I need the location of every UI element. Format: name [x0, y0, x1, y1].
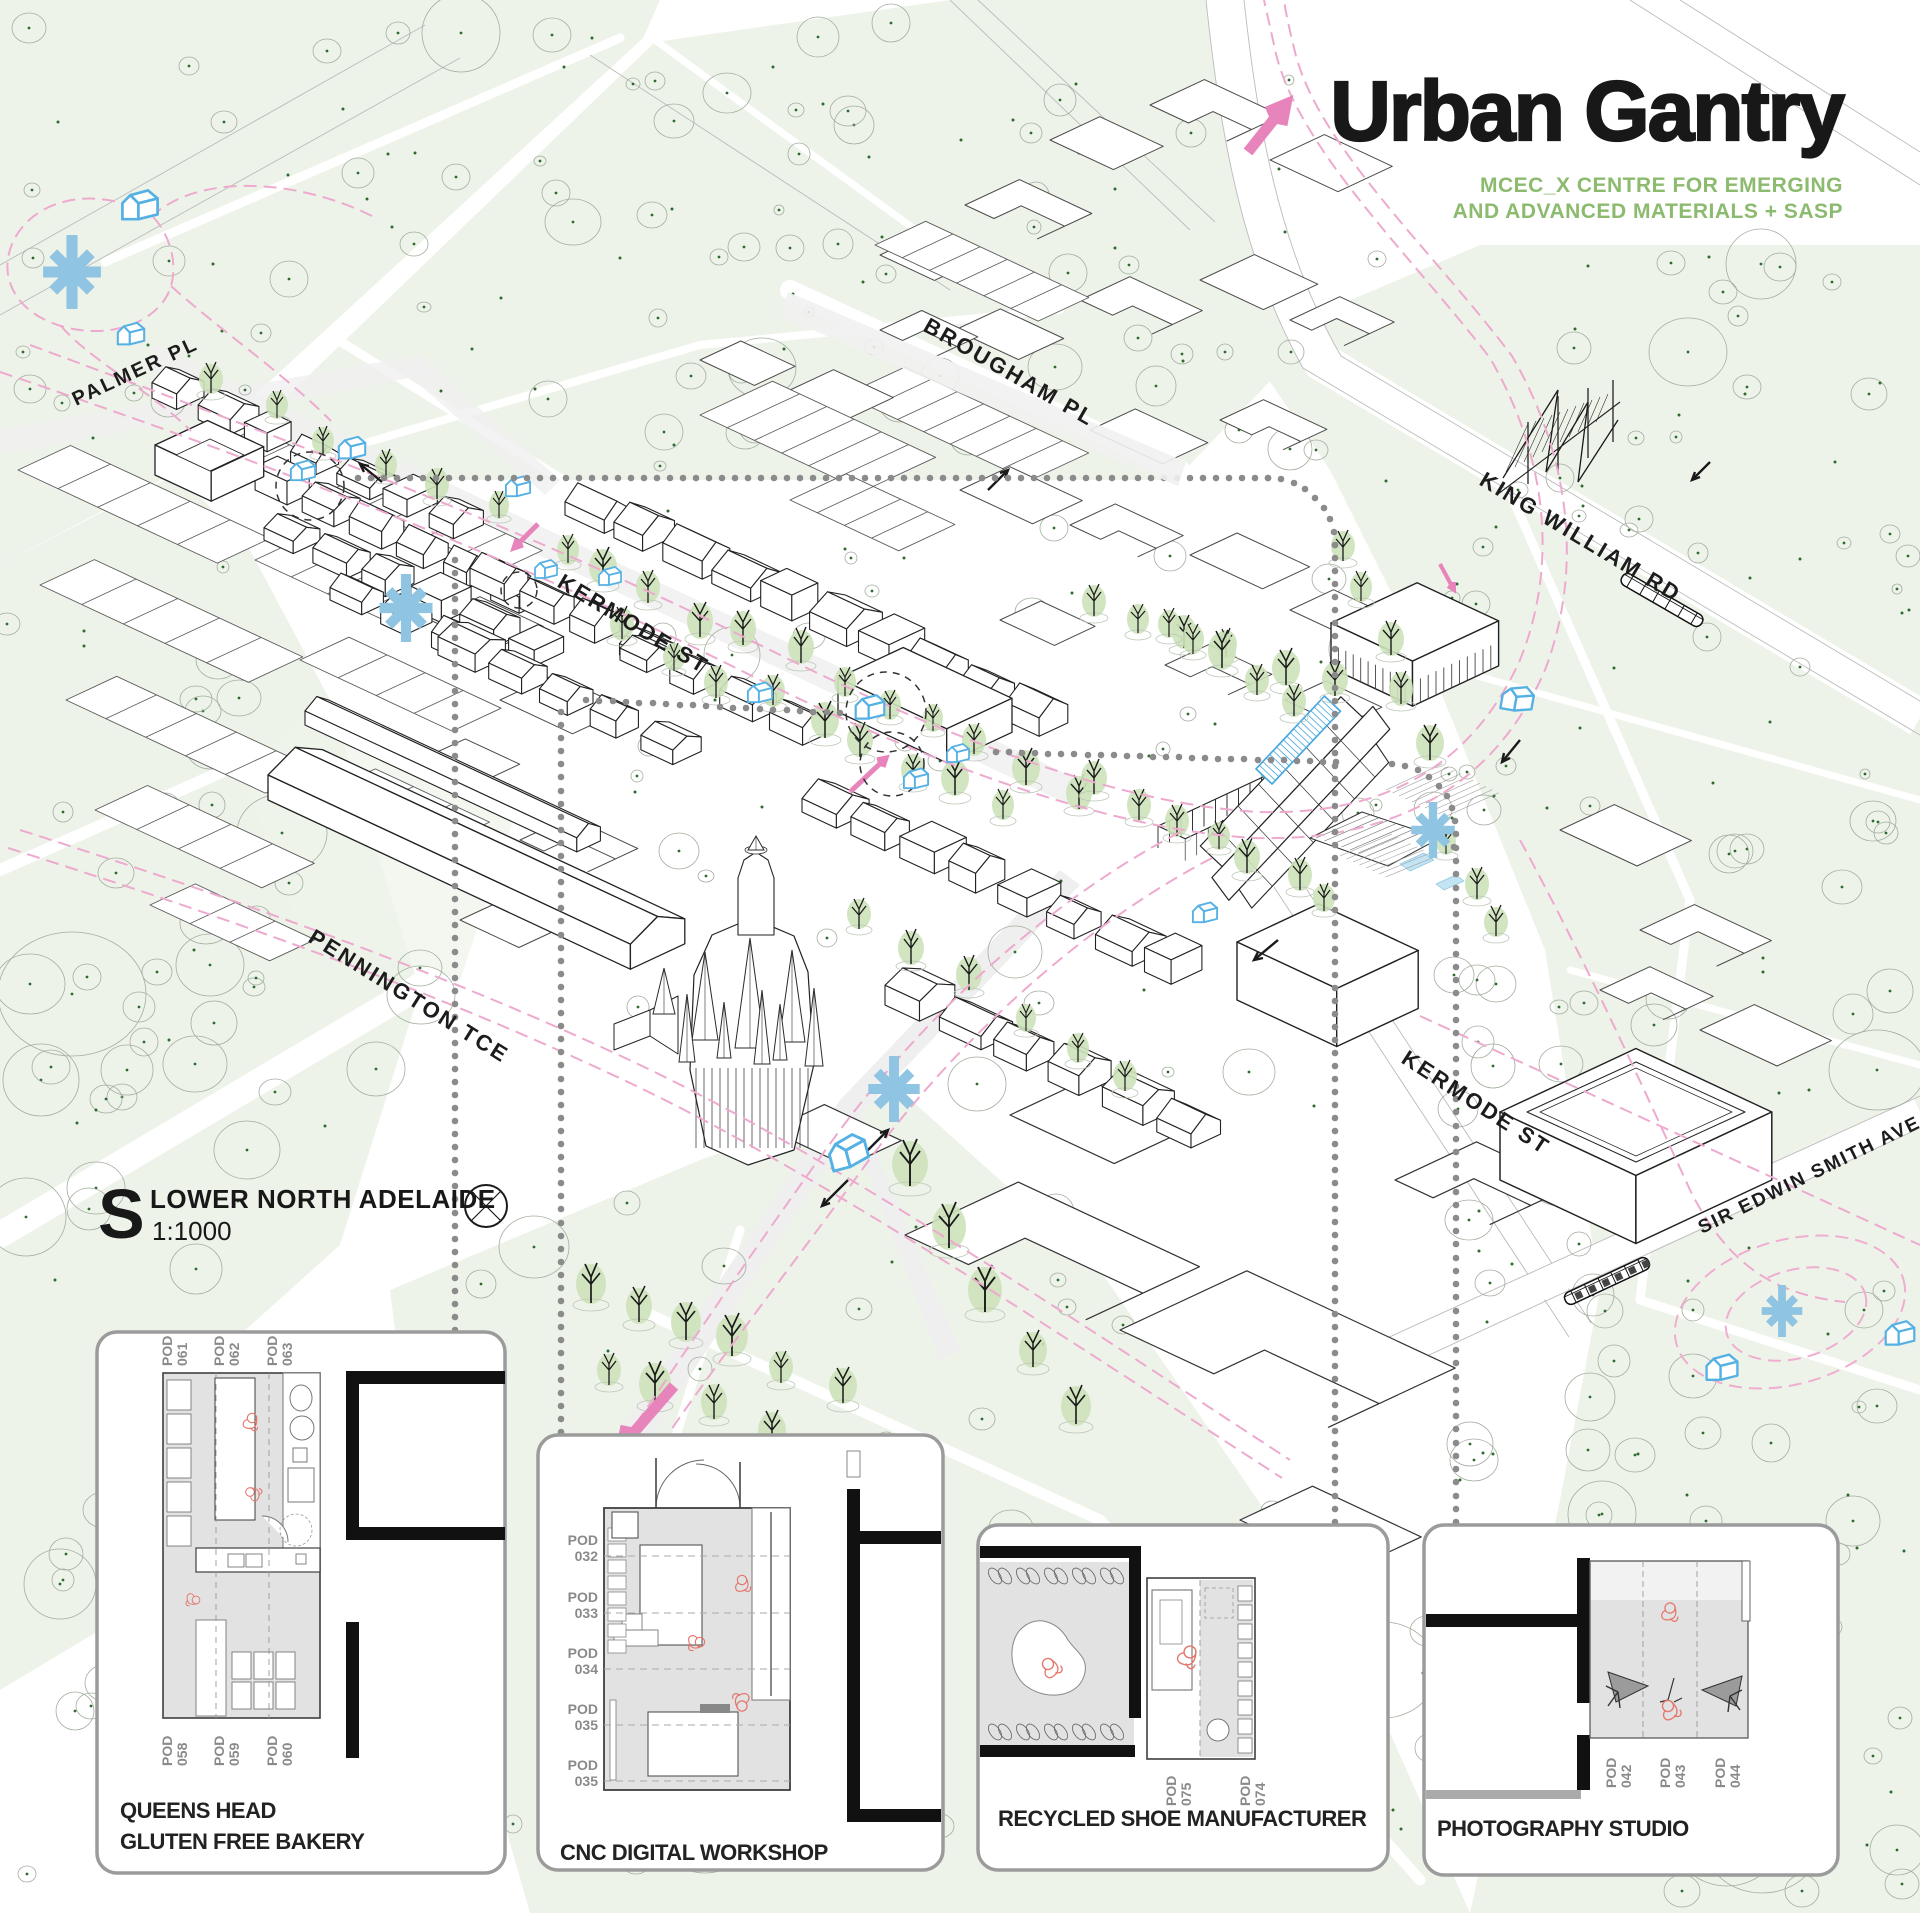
svg-text:1:1000: 1:1000: [152, 1216, 232, 1246]
svg-text:061: 061: [174, 1342, 190, 1366]
svg-text:POD: POD: [568, 1701, 598, 1717]
svg-text:063: 063: [279, 1342, 295, 1366]
svg-text:S: S: [98, 1175, 145, 1253]
svg-text:033: 033: [575, 1605, 599, 1621]
svg-text:POD: POD: [568, 1757, 598, 1773]
svg-text:POD: POD: [211, 1736, 227, 1766]
svg-text:074: 074: [1252, 1782, 1268, 1806]
svg-text:CNC DIGITAL WORKSHOP: CNC DIGITAL WORKSHOP: [560, 1840, 828, 1865]
svg-text:GLUTEN FREE BAKERY: GLUTEN FREE BAKERY: [120, 1829, 365, 1854]
svg-text:AND ADVANCED MATERIALS + SASP: AND ADVANCED MATERIALS + SASP: [1453, 200, 1843, 223]
svg-text:Urban Gantry: Urban Gantry: [1330, 64, 1845, 158]
svg-text:043: 043: [1672, 1764, 1688, 1788]
svg-text:034: 034: [575, 1661, 599, 1677]
svg-text:PHOTOGRAPHY STUDIO: PHOTOGRAPHY STUDIO: [1437, 1816, 1689, 1841]
svg-text:POD: POD: [159, 1736, 175, 1766]
svg-text:POD: POD: [1163, 1776, 1179, 1806]
svg-text:060: 060: [279, 1742, 295, 1766]
svg-text:RECYCLED SHOE MANUFACTURER: RECYCLED SHOE MANUFACTURER: [998, 1806, 1367, 1831]
svg-text:POD: POD: [568, 1645, 598, 1661]
svg-text:POD: POD: [568, 1589, 598, 1605]
svg-text:POD: POD: [1712, 1758, 1728, 1788]
svg-text:042: 042: [1618, 1764, 1634, 1788]
svg-text:035: 035: [575, 1773, 599, 1789]
svg-text:QUEENS HEAD: QUEENS HEAD: [120, 1798, 276, 1823]
svg-text:058: 058: [174, 1742, 190, 1766]
svg-text:062: 062: [226, 1342, 242, 1366]
svg-text:POD: POD: [1237, 1776, 1253, 1806]
svg-text:POD: POD: [211, 1336, 227, 1366]
svg-text:MCEC_X CENTRE FOR EMERGING: MCEC_X CENTRE FOR EMERGING: [1480, 174, 1843, 197]
svg-text:POD: POD: [264, 1336, 280, 1366]
svg-text:POD: POD: [264, 1736, 280, 1766]
svg-text:035: 035: [575, 1717, 599, 1733]
svg-text:032: 032: [575, 1548, 599, 1564]
svg-text:POD: POD: [1603, 1758, 1619, 1788]
svg-text:059: 059: [226, 1742, 242, 1766]
svg-text:POD: POD: [568, 1532, 598, 1548]
svg-text:POD: POD: [159, 1336, 175, 1366]
svg-text:044: 044: [1727, 1764, 1743, 1788]
svg-text:LOWER NORTH ADELAIDE: LOWER NORTH ADELAIDE: [150, 1184, 496, 1214]
svg-text:POD: POD: [1657, 1758, 1673, 1788]
svg-text:075: 075: [1178, 1782, 1194, 1806]
